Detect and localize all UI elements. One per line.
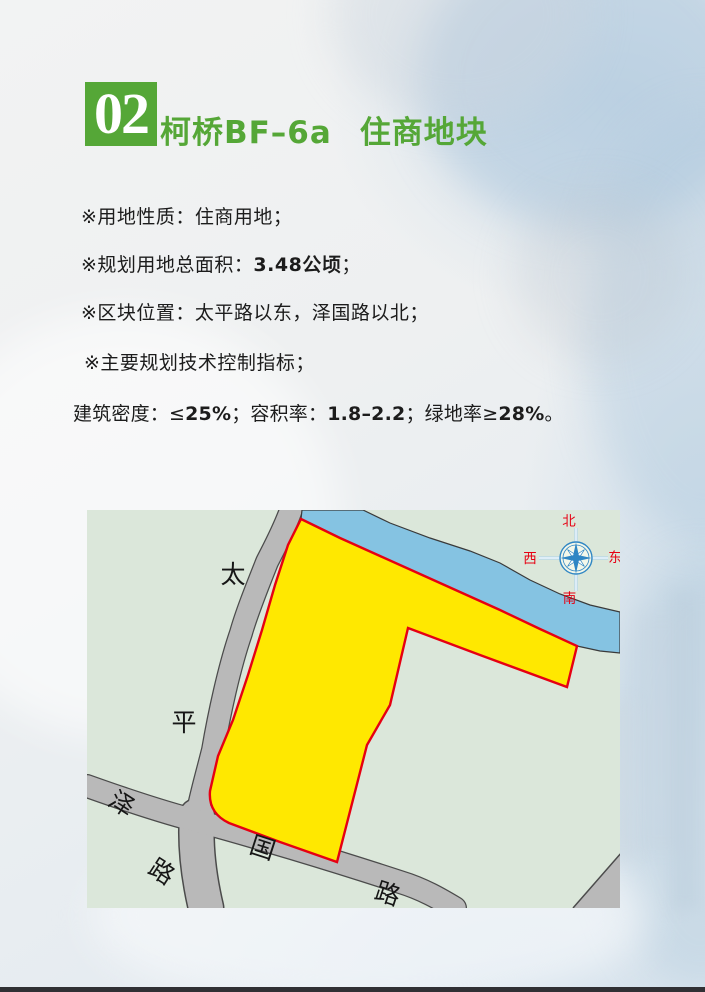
info-text: ；容积率： bbox=[231, 403, 327, 425]
info-value-area: 3.48公顷 bbox=[253, 254, 341, 276]
location-map-svg: 太 平 路 泽 国 路 北 南 西 东 bbox=[87, 510, 620, 908]
info-line-indicators-heading: ※主要规划技术控制指标； bbox=[84, 348, 315, 375]
info-text: ※规划用地总面积： bbox=[81, 254, 253, 276]
page-title-name: 住商地块 bbox=[360, 107, 488, 152]
section-number: 02 bbox=[94, 82, 148, 146]
background-texture bbox=[330, 0, 590, 120]
info-text: ；绿地率≥ bbox=[405, 403, 498, 425]
background-photo-streak bbox=[670, 590, 700, 910]
info-text: ※用地性质：住商用地； bbox=[81, 206, 292, 228]
compass-north-label: 北 bbox=[562, 514, 576, 530]
background-texture bbox=[585, 110, 705, 540]
info-text: ※主要规划技术控制指标； bbox=[84, 352, 315, 374]
info-line-land-use: ※用地性质：住商用地； bbox=[81, 202, 292, 229]
info-text: ； bbox=[341, 254, 361, 276]
info-value-green-ratio: 28% bbox=[498, 403, 544, 425]
road-label-taiping-2: 平 bbox=[171, 708, 196, 737]
info-line-location: ※区块位置：太平路以东，泽国路以北； bbox=[81, 298, 429, 325]
info-value-density: 25% bbox=[185, 403, 231, 425]
road-label-taiping-1: 太 bbox=[220, 560, 245, 589]
info-line-indicators: 建筑密度：≤25%；容积率：1.8–2.2；绿地率≥28%。 bbox=[73, 399, 564, 426]
info-text: 。 bbox=[544, 403, 563, 425]
page-title-code: 柯桥BF–6a bbox=[160, 107, 332, 152]
location-map: 太 平 路 泽 国 路 北 南 西 东 bbox=[87, 510, 620, 908]
page-bottom-edge bbox=[0, 987, 705, 992]
background-texture bbox=[515, 190, 685, 360]
compass-south-label: 南 bbox=[563, 591, 577, 607]
brochure-page: 02 柯桥BF–6a 住商地块 ※用地性质：住商用地； ※规划用地总面积：3.4… bbox=[0, 0, 705, 992]
background-photo-streak bbox=[640, 615, 684, 850]
info-line-total-area: ※规划用地总面积：3.48公顷； bbox=[81, 250, 361, 277]
section-number-badge: 02 bbox=[85, 82, 157, 146]
info-text: 建筑密度：≤ bbox=[73, 403, 185, 425]
info-text: ※区块位置：太平路以东，泽国路以北； bbox=[81, 302, 429, 324]
page-title: 柯桥BF–6a 住商地块 bbox=[160, 107, 488, 152]
compass-west-label: 西 bbox=[523, 551, 537, 567]
compass-east-label: 东 bbox=[608, 550, 620, 566]
info-value-far: 1.8–2.2 bbox=[327, 403, 405, 425]
